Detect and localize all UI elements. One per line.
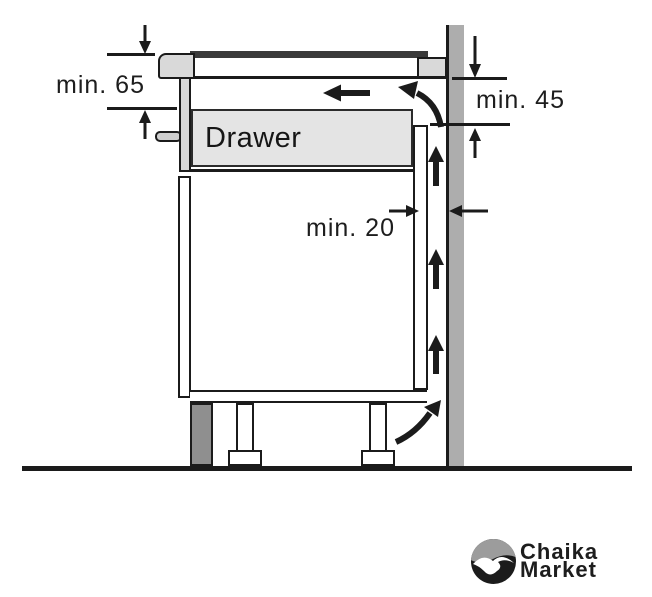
- dim-arrow-down-min45: [469, 36, 481, 78]
- airflow-arrow-up-1: [428, 146, 444, 186]
- dim-arrow-left-min20: [449, 205, 488, 217]
- dim-arrow-up-min45: [469, 128, 481, 158]
- dim-label-min45: min. 45: [476, 88, 565, 113]
- airflow-arrow-up-2: [428, 249, 444, 289]
- airflow-arrow-left: [323, 85, 370, 102]
- dim-arrow-up-min65: [139, 110, 151, 139]
- installation-diagram: Drawer: [0, 0, 652, 597]
- airflow-arrow-curve-bottom: [396, 400, 441, 442]
- seagull-logo-icon: [469, 537, 518, 586]
- dim-arrow-down-min65: [139, 25, 151, 54]
- airflow-arrow-up-3: [428, 335, 444, 374]
- dim-label-min20: min. 20: [306, 216, 395, 241]
- airflow-arrow-curve-top: [398, 81, 441, 127]
- brand-name-line2: Market: [520, 559, 597, 581]
- dim-label-min65: min. 65: [56, 73, 145, 98]
